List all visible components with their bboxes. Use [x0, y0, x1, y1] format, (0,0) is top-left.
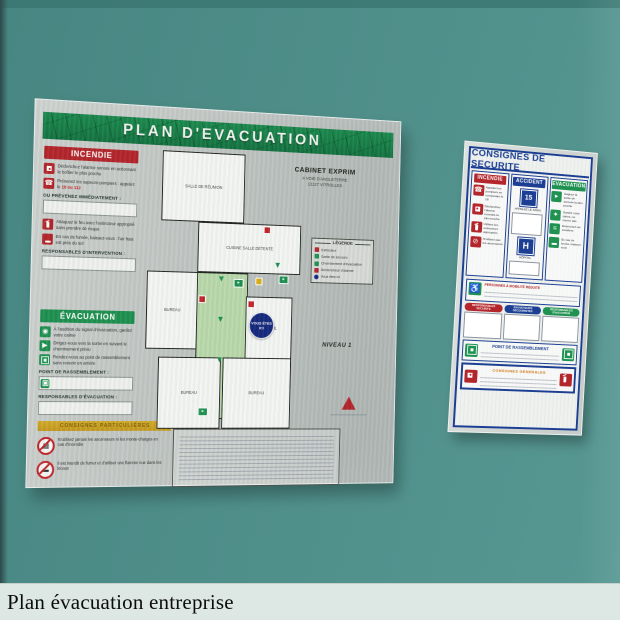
col-incendie-header: INCENDIE: [473, 173, 506, 185]
emergency-exit-icon: ▸: [233, 279, 243, 288]
extinguisher-icon: [42, 218, 53, 229]
alarm-marker-icon: [255, 278, 262, 286]
legend-extinguisher-icon: [315, 247, 319, 252]
room-bureau-1: BUREAU: [145, 270, 199, 349]
pill-label: SAUVETEURS SECOURISTES: [504, 305, 541, 313]
col-evacuation: EVACUATION ▸ Gagnez la sortie de secours…: [544, 177, 588, 283]
smoke-crouch-icon: [42, 233, 53, 244]
assembly-point-icon: [41, 379, 50, 388]
room-label: BUREAU: [164, 308, 180, 313]
incendie-row-text: Utilisez les extincteurs appropriés: [483, 222, 504, 235]
room-bureau-3: BUREAU: [221, 357, 291, 428]
incendie-item: Attaquez le feu avec l'extincteur approp…: [42, 218, 136, 232]
room-label: CUISINE SALLE DÉTENTE: [226, 245, 273, 251]
floor-plan: SALLE DE RÉUNION CUISINE SALLE DÉTENTE B…: [141, 147, 317, 442]
safety-instructions-board: CONSIGNES DE SECURITE INCENDIE ☎ Appelez…: [447, 141, 597, 436]
no-elevator-icon: ▦: [37, 437, 55, 455]
point-text-lines: [480, 349, 559, 361]
assembly-point-icon: [39, 354, 50, 365]
incendie-row-text: N'utilisez pas les ascenseurs: [483, 237, 504, 246]
incendie-item-text: Prévenez les sapeurs-pompiers : appelez …: [57, 178, 138, 193]
logo-text-lines: [330, 411, 366, 418]
col-evacuation-title: EVACUATION: [552, 181, 585, 190]
emergency-exit-icon: ▸: [198, 407, 208, 416]
evacuation-row: En cas de fumée, baissez-vous: [548, 236, 582, 250]
point-rassemblement-band: POINT DE RASSEMBLEMENT: [462, 339, 578, 365]
incendie-item-text: En cas de fumée, baissez-vous : l'air fr…: [56, 234, 137, 248]
responsables-intervention-box: [41, 255, 136, 272]
room-label: BUREAU: [181, 390, 197, 395]
legend-label: Cheminement d'évacuation: [321, 262, 362, 267]
room-cuisine: CUISINE SALLE DÉTENTE: [197, 222, 301, 275]
incendie-section: INCENDIE Déclenchez l'alarme sonore en a…: [41, 146, 138, 272]
col-incendie-title: INCENDIE: [477, 175, 503, 183]
no-smoking-icon: ▬: [36, 461, 54, 479]
names-box: [463, 312, 502, 340]
evacuation-item: ◉ À l'audition du signal d'évacuation, g…: [40, 326, 135, 339]
evacuation-item-text: Rendez-vous au point de rassemblement sa…: [53, 354, 134, 366]
stairs-icon: ≡: [549, 223, 560, 235]
extinguisher-marker-icon: [248, 300, 255, 308]
consignes-generales-band: CONSIGNES GENERALES: [460, 362, 577, 393]
incendie-row: ☎ Appelez les pompiers en composant le 1…: [472, 184, 506, 203]
safety-columns: INCENDIE ☎ Appelez les pompiers en compo…: [463, 168, 590, 285]
evacuation-row: ▸ Gagnez la sortie de secours la plus pr…: [551, 191, 585, 209]
legend-label: Vous êtes ici: [321, 275, 340, 279]
prevenez-fill-box: [43, 200, 138, 218]
evacuation-arrow-icon: ▼: [274, 261, 282, 270]
legend-label: Déclencheur d'alarme: [321, 268, 354, 273]
point-rassemblement-center: POINT DE RASSEMBLEMENT: [480, 343, 559, 362]
room-salle-reunion: SALLE DE RÉUNION: [161, 150, 245, 223]
evacuation-arrow-icon: ▼: [216, 315, 224, 324]
generales-text-lines: [480, 374, 557, 389]
legend-title: LÉGENDE: [315, 241, 371, 248]
walking-person-icon: ✦: [550, 209, 561, 221]
col-incendie: INCENDIE ☎ Appelez les pompiers en compo…: [465, 170, 509, 278]
names-box: [541, 316, 579, 343]
legend-exit-icon: [315, 254, 319, 259]
alarm-button-icon: [44, 163, 55, 174]
evacuation-row-text: Gagnez la sortie de secours la plus proc…: [563, 192, 585, 209]
wall-shadow-top: [0, 0, 620, 8]
col-evacuation-header: EVACUATION: [552, 180, 586, 192]
caption-bar: Plan évacuation entreprise: [0, 583, 620, 620]
samu-number: 15: [525, 194, 533, 201]
legend-route-icon: [314, 261, 318, 266]
evacuation-row: ≡ Empruntez les escaliers: [549, 223, 583, 236]
plan-title: PLAN D'EVACUATION: [123, 121, 322, 150]
maker-logo: [330, 396, 367, 417]
responsables-name-boxes: [463, 312, 579, 344]
caption-text: Plan évacuation entreprise: [0, 590, 234, 615]
evacuation-row-text: Empruntez les escaliers: [562, 224, 583, 233]
room-label: SALLE DE RÉUNION: [185, 184, 222, 191]
incendie-row: ⊘ N'utilisez pas les ascenseurs: [470, 236, 504, 249]
alarm-signal-icon: ◉: [40, 326, 51, 337]
wheelchair-icon: ♿: [468, 282, 481, 296]
accident-notes-box: [511, 212, 543, 236]
consignes-particulieres-label: CONSIGNES PARTICULIÈRES: [60, 423, 150, 429]
alarm-button-icon: [472, 203, 483, 215]
incendie-item: En cas de fumée, baissez-vous : l'air fr…: [42, 233, 137, 247]
evacuation-header: ÉVACUATION: [40, 309, 135, 324]
legend-label: Sortie de secours: [321, 255, 347, 260]
evacuation-row-text: Gardez votre calme, ne courez pas: [562, 210, 584, 223]
legend-title-text: LÉGENDE: [333, 241, 353, 246]
you-are-here-label: VOUS ÊTES ICI: [250, 320, 274, 330]
legend-row: Extincteur: [315, 247, 371, 254]
incendie-title: INCENDIE: [71, 149, 113, 160]
samu-15-sign: 15: [520, 189, 537, 207]
emergency-numbers: 18 ou 112: [62, 184, 81, 190]
evacuation-row-text: En cas de fumée, baissez-vous: [561, 237, 583, 250]
extinguisher-marker-icon: [264, 226, 271, 234]
incendie-item: ☎ Prévenez les sapeurs-pompiers : appele…: [43, 178, 137, 193]
smoke-crouch-icon: [549, 236, 560, 247]
level-label: NIVEAU 1: [305, 341, 368, 349]
legend-row: Déclencheur d'alarme: [314, 268, 370, 274]
emergency-exit-icon: ▸: [551, 191, 562, 203]
no-elevator-icon: ⊘: [470, 236, 481, 248]
pill-responsables-evacuation: RESPONSABLES EVACUATION: [543, 306, 580, 316]
incendie-row: Déclenchez l'alarme incendie la plus pro…: [471, 203, 505, 221]
col-accident-header: ACCIDENT: [513, 176, 546, 188]
responsables-evacuation-label: RESPONSABLES D'ÉVACUATION :: [38, 394, 133, 399]
incendie-row-text: Déclenchez l'alarme incendie la plus pro…: [484, 204, 505, 221]
room-bureau-2: BUREAU: [156, 357, 221, 429]
extinguisher-icon: [559, 373, 572, 386]
names-box: [502, 314, 540, 341]
evacuation-arrow-icon: ▼: [215, 355, 223, 364]
evacuation-item: Rendez-vous au point de rassemblement sa…: [39, 354, 134, 366]
pill-sauveteurs-secouristes: SAUVETEURS SECOURISTES: [504, 304, 541, 314]
evacuation-title: ÉVACUATION: [60, 312, 116, 322]
legend-you-are-here-icon: [314, 274, 318, 279]
legend-row: Cheminement d'évacuation: [314, 261, 370, 267]
hospital-label: HÔPITAL: [509, 254, 542, 260]
extinguisher-icon: [471, 221, 482, 233]
phone-icon: ☎: [43, 178, 54, 189]
incendie-row: Utilisez les extincteurs appropriés: [470, 221, 504, 235]
evacuation-section: ÉVACUATION ◉ À l'audition du signal d'év…: [38, 309, 135, 415]
responsables-evacuation-box: [38, 401, 133, 415]
evacuation-item: ▶ Dirigez-vous vers la sortie en suivant…: [39, 340, 134, 352]
incendie-item-text: Déclenchez l'alarme sonore en actionnant…: [57, 163, 138, 178]
pmr-text: PERSONNES À MOBILITÉ RÉDUITE: [484, 283, 578, 304]
evacuation-row: ✦ Gardez votre calme, ne courez pas: [550, 209, 584, 223]
consignes-generales-center: CONSIGNES GENERALES: [480, 367, 558, 388]
incendie-item: Déclenchez l'alarme sonore en actionnant…: [44, 163, 138, 179]
legend-row: Vous êtes ici: [314, 274, 370, 280]
evacuation-arrow-icon: ▼: [217, 275, 225, 284]
legend-box: LÉGENDE Extincteur Sortie de secours Che…: [310, 238, 373, 285]
emergency-exit-icon: ▸: [279, 275, 289, 284]
safety-board-frame: CONSIGNES DE SECURITE INCENDIE ☎ Appelez…: [453, 146, 593, 431]
hospital-notes-box: [509, 260, 540, 276]
pill-responsables-securite: RESPONSABLES SECURITE: [464, 302, 502, 312]
col-accident: ACCIDENT 15 APPELEZ LE SAMU H HÔPITAL: [505, 174, 548, 281]
alarm-button-icon: [464, 369, 477, 382]
incendie-row-text: Appelez les pompiers en composant le 18: [485, 185, 506, 203]
phone-icon: ☎: [473, 184, 484, 196]
pill-label: RESPONSABLES SECURITE: [465, 303, 503, 311]
incendie-header: INCENDIE: [44, 146, 138, 164]
assembly-point-icon: [562, 348, 575, 361]
point-rassemblement-box: [38, 376, 133, 391]
pill-label: RESPONSABLES EVACUATION: [543, 308, 580, 316]
point-rassemblement-label: POINT DE RASSEMBLEMENT :: [39, 369, 133, 375]
evacuation-plan-board: PLAN D'EVACUATION INCENDIE Déclenchez l'…: [25, 98, 401, 488]
assembly-point-icon: [465, 343, 478, 357]
legend-label: Extincteur: [321, 248, 336, 252]
legend-row: Sortie de secours: [315, 254, 371, 261]
extinguisher-marker-icon: [198, 295, 206, 303]
exit-route-icon: ▶: [39, 340, 50, 351]
incendie-item-text: Attaquez le feu avec l'extincteur approp…: [56, 219, 137, 233]
col-accident-title: ACCIDENT: [516, 178, 543, 186]
room-label: BUREAU: [248, 391, 264, 396]
interdiction-text: Il est interdit de fumer et d'utiliser u…: [57, 460, 163, 471]
legend-alarm-icon: [314, 268, 318, 273]
evacuation-item-text: À l'audition du signal d'évacuation, gar…: [53, 326, 134, 338]
evacuation-item-text: Dirigez-vous vers la sortie en suivant l…: [53, 340, 134, 352]
logo-triangle-icon: [342, 397, 356, 410]
photo-scene: PLAN D'EVACUATION INCENDIE Déclenchez l'…: [0, 0, 620, 620]
hospital-letter: H: [522, 241, 529, 251]
interdiction-item: ▬ Il est interdit de fumer et d'utiliser…: [36, 460, 163, 479]
hospital-sign: H: [517, 237, 534, 255]
interdictions-section: ▦ N'utilisez jamais les ascenseurs ni le…: [36, 437, 163, 479]
wall-shadow-left: [0, 0, 8, 584]
